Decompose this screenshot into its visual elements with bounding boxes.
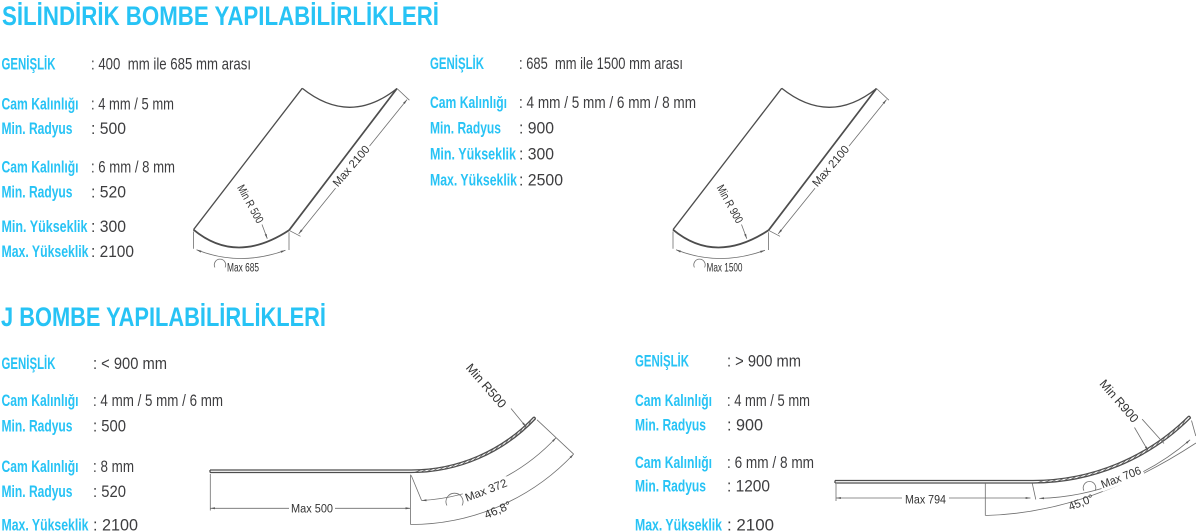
svg-text:: 685 mm ile 1500 mm arası: : 685 mm ile 1500 mm arası	[519, 55, 683, 73]
svg-text:GENİŞLİK: GENİŞLİK	[2, 55, 56, 74]
svg-text:Max 1500: Max 1500	[707, 263, 743, 275]
svg-text:: > 900 mm: : > 900 mm	[727, 352, 801, 370]
svg-text:Cam Kalınlığı: Cam Kalınlığı	[2, 457, 79, 476]
svg-text:Max 794: Max 794	[905, 495, 947, 507]
svg-text:Min. Radyus: Min. Radyus	[2, 119, 73, 138]
svg-text:Min. Radyus: Min. Radyus	[2, 183, 73, 202]
svg-text:Cam Kalınlığı: Cam Kalınlığı	[2, 391, 79, 410]
svg-text:Min. Radyus: Min. Radyus	[430, 119, 501, 138]
svg-text:46,8°: 46,8°	[483, 500, 513, 522]
svg-text:GENİŞLİK: GENİŞLİK	[430, 54, 484, 73]
svg-text:Max. Yükseklik: Max. Yükseklik	[2, 516, 89, 532]
svg-text:Min R900: Min R900	[1097, 377, 1142, 425]
svg-text:: 500: : 500	[93, 418, 126, 436]
svg-text:: 900: : 900	[727, 416, 763, 434]
svg-text:Min. Radyus: Min. Radyus	[635, 415, 706, 434]
svg-text:Cam Kalınlığı: Cam Kalınlığı	[2, 95, 79, 114]
svg-text:Cam Kalınlığı: Cam Kalınlığı	[635, 453, 712, 472]
svg-text:: 4 mm / 5 mm / 6 mm / 8 mm: : 4 mm / 5 mm / 6 mm / 8 mm	[519, 94, 696, 112]
svg-text:: 520: : 520	[93, 483, 126, 501]
svg-text:Cam Kalınlığı: Cam Kalınlığı	[430, 93, 507, 112]
svg-text:: 4 mm / 5 mm: : 4 mm / 5 mm	[91, 96, 174, 114]
svg-text:45,0°: 45,0°	[1067, 493, 1096, 514]
svg-text:Min R500: Min R500	[463, 361, 509, 411]
svg-text:: 2100: : 2100	[93, 517, 138, 532]
svg-text:: 4 mm / 5 mm: : 4 mm / 5 mm	[727, 392, 810, 410]
svg-text:Max. Yükseklik: Max. Yükseklik	[2, 242, 89, 261]
svg-text:Max 372: Max 372	[464, 478, 509, 505]
svg-text:: 500: : 500	[91, 120, 126, 138]
svg-text:Min. Radyus: Min. Radyus	[2, 482, 73, 501]
svg-text:: 8 mm: : 8 mm	[93, 458, 134, 476]
svg-text:Min. Radyus: Min. Radyus	[2, 417, 73, 436]
svg-text:: 1200: : 1200	[727, 477, 770, 495]
svg-text:Max 500: Max 500	[291, 504, 333, 516]
svg-text:: 2100: : 2100	[91, 243, 134, 261]
svg-text:Cam Kalınlığı: Cam Kalınlığı	[635, 391, 712, 410]
svg-text:Min R 500: Min R 500	[234, 183, 265, 226]
svg-text:: 300: : 300	[91, 218, 126, 236]
svg-text:Min. Yükseklik: Min. Yükseklik	[430, 144, 516, 163]
svg-text:GENİŞLİK: GENİŞLİK	[2, 354, 56, 373]
svg-text:Cam Kalınlığı: Cam Kalınlığı	[2, 158, 79, 177]
svg-text:Max. Yükseklik: Max. Yükseklik	[430, 170, 517, 189]
svg-text:: 6 mm / 8 mm: : 6 mm / 8 mm	[727, 454, 814, 472]
svg-text:: 900: : 900	[519, 120, 554, 138]
svg-text:GENİŞLİK: GENİŞLİK	[635, 351, 689, 370]
svg-text:SİLİNDİRİK BOMBE YAPILABİLİRLİ: SİLİNDİRİK BOMBE YAPILABİLİRLİKLERİ	[2, 1, 439, 31]
svg-text:Min R 900: Min R 900	[714, 183, 745, 226]
svg-text:: 400 mm ile 685 mm arası: : 400 mm ile 685 mm arası	[91, 56, 251, 74]
svg-text:Max. Yükseklik: Max. Yükseklik	[635, 516, 722, 532]
svg-text:: < 900 mm: : < 900 mm	[93, 355, 167, 373]
svg-text:: 2100: : 2100	[727, 517, 774, 532]
svg-text:Min. Radyus: Min. Radyus	[635, 476, 706, 495]
svg-text:: 300: : 300	[519, 145, 554, 163]
svg-text:: 4 mm / 5 mm / 6 mm: : 4 mm / 5 mm / 6 mm	[93, 392, 223, 410]
svg-text:: 2500: : 2500	[519, 171, 563, 189]
svg-text:Max 685: Max 685	[227, 263, 259, 275]
svg-text:: 6 mm / 8 mm: : 6 mm / 8 mm	[91, 159, 175, 177]
svg-text:Min. Yükseklik: Min. Yükseklik	[2, 217, 88, 236]
svg-text:J BOMBE YAPILABİLİRLİKLERİ: J BOMBE YAPILABİLİRLİKLERİ	[1, 302, 326, 332]
svg-text:: 520: : 520	[91, 184, 126, 202]
